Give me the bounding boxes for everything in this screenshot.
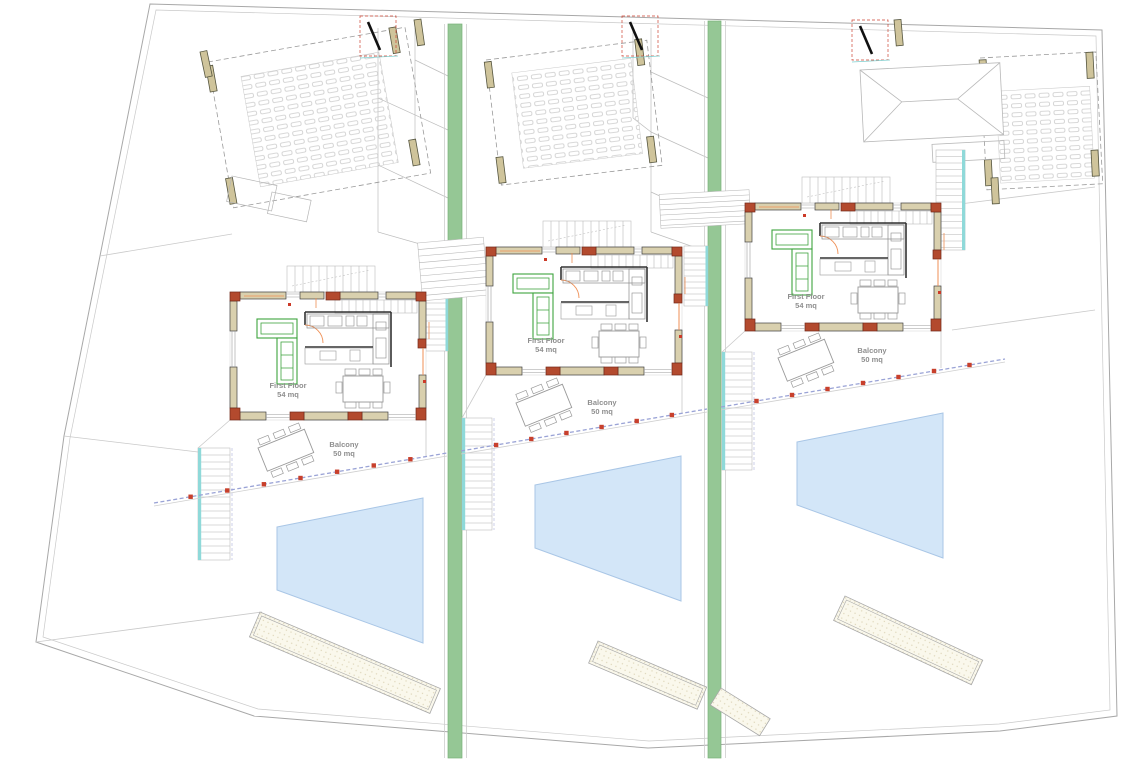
villa-1-balcony-label: Balcony — [329, 440, 359, 449]
outdoor-table-3 — [775, 332, 837, 389]
site-plan: First Floor 54 mq Balcony 50 mq First Fl… — [0, 0, 1140, 760]
strip-crossing-2 — [659, 190, 751, 229]
louver-grid — [996, 86, 1095, 183]
pool-2 — [535, 456, 681, 601]
balcony-railing-3 — [721, 359, 1005, 410]
fence-post-1 — [200, 51, 212, 78]
villa-2-first-floor-area: 54 mq — [535, 345, 557, 354]
pergola-1 — [205, 25, 431, 208]
fence-post-2 — [414, 19, 425, 46]
pergola-2 — [484, 38, 662, 185]
greenway-1 — [445, 24, 467, 758]
villa-3-first-floor-area: 54 mq — [795, 301, 817, 310]
villa-3-balcony-area: 50 mq — [861, 355, 883, 364]
side-stair-2 — [684, 246, 708, 306]
outdoor-table-1 — [255, 422, 317, 479]
villa-3-house — [745, 177, 944, 331]
louver-grid — [241, 52, 398, 187]
balcony-stair-3 — [722, 352, 754, 470]
entry-step-2 — [267, 192, 311, 222]
villa-1-house — [230, 266, 429, 420]
villa-2-house — [486, 221, 685, 375]
balcony-stair-1 — [198, 448, 232, 560]
pool-1 — [277, 498, 423, 643]
strip-crossing-1 — [418, 237, 489, 301]
villa-3-first-floor-label: First Floor — [787, 292, 824, 301]
louver-grid — [512, 58, 643, 168]
planter-2 — [589, 641, 707, 709]
pool-3 — [797, 413, 943, 558]
villa-2-first-floor-label: First Floor — [527, 336, 564, 345]
planter-3 — [834, 596, 983, 685]
villa-1-balcony-area: 50 mq — [333, 449, 355, 458]
villa-1-first-floor-area: 54 mq — [277, 390, 299, 399]
outdoor-table-2 — [513, 377, 575, 434]
fence-post-4 — [991, 178, 999, 204]
villa-3-balcony-label: Balcony — [857, 346, 887, 355]
balcony-stair-2 — [462, 418, 494, 530]
gate-marker-3 — [852, 20, 890, 62]
site-plan-canvas: First Floor 54 mq Balcony 50 mq First Fl… — [0, 0, 1140, 760]
roof-canopy — [860, 63, 1005, 166]
villa-2-balcony-area: 50 mq — [591, 407, 613, 416]
fence-post-3 — [894, 19, 903, 46]
balcony-railing-2 — [461, 409, 707, 454]
villa-1-first-floor-label: First Floor — [269, 381, 306, 390]
villa-2-balcony-label: Balcony — [587, 398, 617, 407]
